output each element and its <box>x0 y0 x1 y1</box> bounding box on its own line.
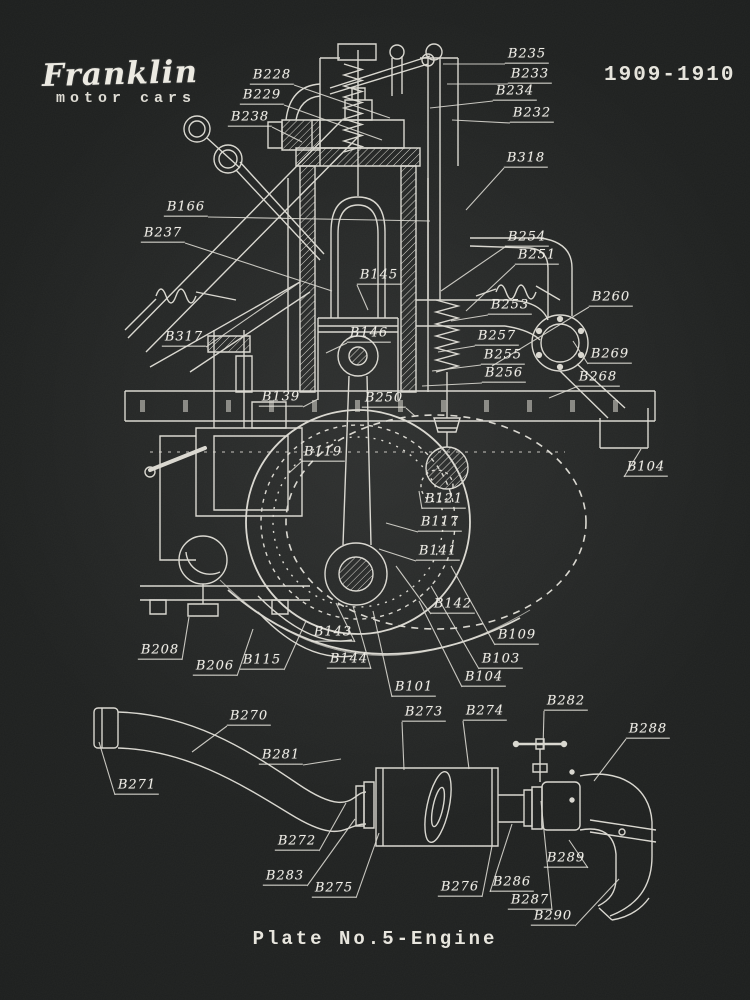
part-label-b288: B288 <box>626 722 670 739</box>
part-label-b272: B272 <box>275 834 319 851</box>
blueprint-page: B228B229B238B235B233B234B232B318B166B237… <box>0 0 750 1000</box>
part-label-b142: B142 <box>431 597 475 614</box>
part-label-b274: B274 <box>463 704 507 721</box>
part-label-b287: B287 <box>508 893 552 910</box>
part-label-b317: B317 <box>162 330 206 347</box>
part-label-b256: B256 <box>482 366 526 383</box>
part-label-b228: B228 <box>250 68 294 85</box>
valve-spring-lower <box>436 300 458 372</box>
model-years: 1909-1910 <box>604 64 735 87</box>
engine-drawing <box>0 0 750 1000</box>
part-label-b233: B233 <box>508 67 552 84</box>
tail-elbow <box>580 774 652 916</box>
intake-flange-pipe <box>416 238 648 448</box>
part-label-b289: B289 <box>544 851 588 868</box>
part-label-b237: B237 <box>141 226 185 243</box>
exhaust-assembly <box>94 708 656 920</box>
part-label-b145: B145 <box>357 268 401 285</box>
part-label-b275: B275 <box>312 881 356 898</box>
part-label-b269: B269 <box>588 347 632 364</box>
part-label-b273: B273 <box>402 705 446 722</box>
cutout-valve <box>542 782 580 830</box>
part-label-b208: B208 <box>138 643 182 660</box>
part-label-b119: B119 <box>301 445 345 462</box>
part-label-b109: B109 <box>495 628 539 645</box>
part-label-b283: B283 <box>263 869 307 886</box>
part-label-b104: B104 <box>624 460 668 477</box>
part-label-b103: B103 <box>479 652 523 669</box>
part-label-b101: B101 <box>392 680 436 697</box>
part-label-b254: B254 <box>505 230 549 247</box>
part-label-b117: B117 <box>418 515 462 532</box>
part-label-b234: B234 <box>493 84 537 101</box>
muffler <box>376 768 498 846</box>
part-label-b144: B144 <box>327 652 371 669</box>
part-label-b232: B232 <box>510 106 554 123</box>
part-label-b121: B121 <box>422 492 466 509</box>
part-label-b238: B238 <box>228 110 272 127</box>
part-label-b318: B318 <box>504 151 548 168</box>
part-label-b286: B286 <box>490 875 534 892</box>
part-label-b206: B206 <box>193 659 237 676</box>
part-label-b281: B281 <box>259 748 303 765</box>
part-label-b257: B257 <box>475 329 519 346</box>
part-label-b139: B139 <box>259 390 303 407</box>
part-label-b166: B166 <box>164 200 208 217</box>
part-label-b276: B276 <box>438 880 482 897</box>
part-label-b146: B146 <box>347 326 391 343</box>
part-label-b250: B250 <box>362 391 406 408</box>
brand-subtitle: motor cars <box>56 90 196 107</box>
part-label-b251: B251 <box>515 248 559 265</box>
part-label-b143: B143 <box>311 625 355 642</box>
part-label-b115: B115 <box>240 653 284 670</box>
part-label-b282: B282 <box>544 694 588 711</box>
valve-gear <box>268 44 458 300</box>
down-pipe <box>600 408 648 448</box>
part-label-b270: B270 <box>227 709 271 726</box>
carburetor <box>140 330 352 657</box>
part-label-b229: B229 <box>240 88 284 105</box>
part-label-b260: B260 <box>589 290 633 307</box>
plate-caption: Plate No.5-Engine <box>0 928 750 950</box>
part-label-b235: B235 <box>505 47 549 64</box>
part-label-b290: B290 <box>531 909 575 926</box>
inlet-flange <box>94 708 118 748</box>
part-label-b268: B268 <box>576 370 620 387</box>
part-label-b104: B104 <box>462 670 506 687</box>
part-label-b271: B271 <box>115 778 159 795</box>
part-label-b255: B255 <box>481 348 525 365</box>
part-label-b141: B141 <box>416 544 460 561</box>
pushrods <box>428 58 440 300</box>
left-mount-spring <box>156 289 196 303</box>
combustion-dome <box>331 197 385 318</box>
brand-logo: Franklin <box>42 54 199 94</box>
part-label-b253: B253 <box>488 298 532 315</box>
